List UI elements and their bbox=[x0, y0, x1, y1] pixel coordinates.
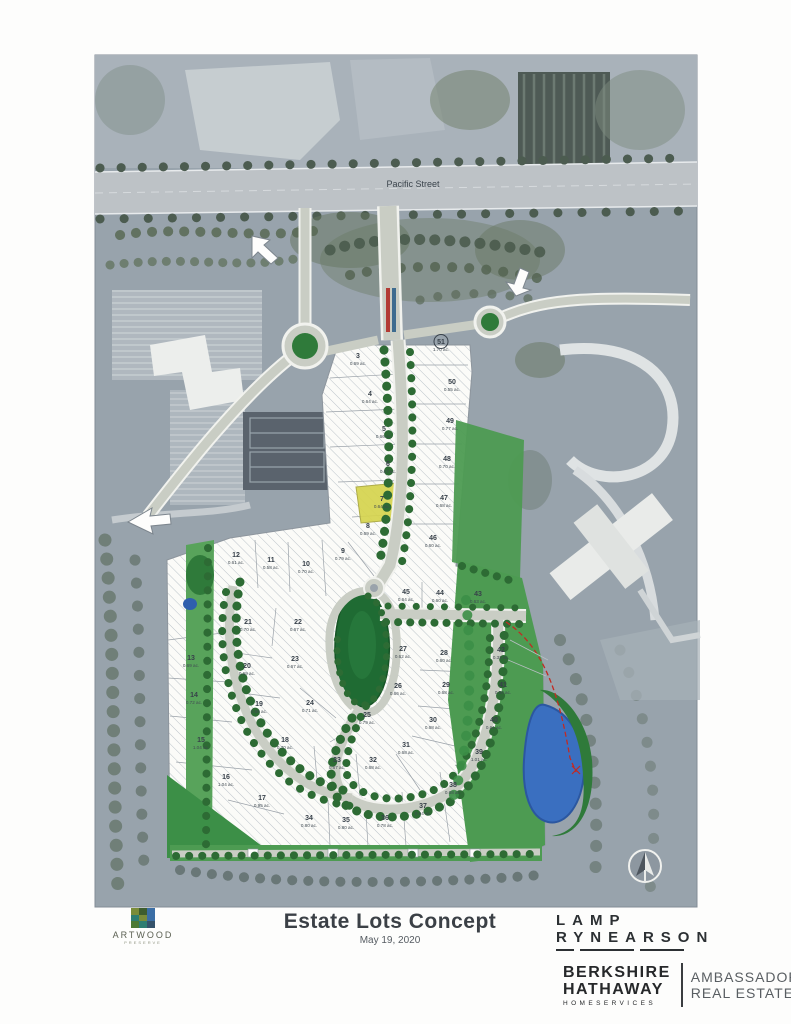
lot-acreage: 0.63 ac. bbox=[470, 599, 486, 604]
lot-acreage: 1.04 ac. bbox=[193, 745, 209, 750]
page-title: Estate Lots Concept bbox=[230, 910, 550, 934]
lot-number: 34 bbox=[305, 815, 313, 822]
lot-acreage: 0.78 ac. bbox=[377, 823, 393, 828]
lot-number: 41 bbox=[499, 682, 507, 689]
lot-number: 15 bbox=[197, 737, 205, 744]
lot-number: 27 bbox=[399, 646, 407, 653]
lot-number: 4 bbox=[368, 391, 372, 398]
lot-number: 32 bbox=[369, 757, 377, 764]
lot-number: 3 bbox=[356, 353, 360, 360]
lot-number: 47 bbox=[440, 495, 448, 502]
lot-acreage: 0.67 ac. bbox=[290, 627, 306, 632]
bh-right1: AMBASSADOR bbox=[691, 969, 791, 985]
lot-number: 20 bbox=[243, 663, 251, 670]
lot-acreage: 0.77 ac. bbox=[442, 426, 458, 431]
lot-acreage: 0.61 ac. bbox=[486, 725, 502, 730]
lot-acreage: 0.68 ac. bbox=[398, 750, 414, 755]
lot-number: 26 bbox=[394, 683, 402, 690]
lot-number: 24 bbox=[306, 700, 314, 707]
lot-number: 33 bbox=[333, 757, 341, 764]
lot-number: 48 bbox=[443, 456, 451, 463]
lot-acreage: 0.67 ac. bbox=[287, 664, 303, 669]
lot-acreage: 0.68 ac. bbox=[445, 790, 461, 795]
artwood-name: ARTWOOD bbox=[98, 930, 188, 940]
title-block: Estate Lots Concept May 19, 2020 bbox=[230, 910, 550, 946]
scanned-site-plan-page: Pacific Street bbox=[0, 0, 791, 1024]
lot-number: 22 bbox=[294, 619, 302, 626]
lot-number: 16 bbox=[222, 774, 230, 781]
lot-number: 14 bbox=[190, 692, 198, 699]
site-plan-svg: Pacific Street bbox=[0, 0, 791, 1024]
lot-number: 49 bbox=[446, 418, 454, 425]
lot-number: 29 bbox=[442, 682, 450, 689]
lot-number: 18 bbox=[281, 737, 289, 744]
bh-divider bbox=[681, 963, 683, 1007]
lot-number: 43 bbox=[474, 591, 482, 598]
lot-acreage: 0.71 ac. bbox=[302, 708, 318, 713]
lot-number: 12 bbox=[232, 552, 240, 559]
lot-acreage: 0.70 ac. bbox=[298, 569, 314, 574]
lot-number: 51 bbox=[437, 339, 445, 346]
lot-acreage: 0.80 ac. bbox=[301, 823, 317, 828]
lot-acreage: 0.68 ac. bbox=[425, 725, 441, 730]
lot-acreage: 0.94 ac. bbox=[415, 811, 431, 816]
lot-number: 7 bbox=[380, 496, 384, 503]
lot-number: 19 bbox=[255, 701, 263, 708]
lot-acreage: 0.60 ac. bbox=[425, 543, 441, 548]
lot-number: 5 bbox=[382, 426, 386, 433]
lot-number: 39 bbox=[475, 749, 483, 756]
lot-number: 11 bbox=[267, 557, 275, 564]
lot-number: 9 bbox=[341, 548, 345, 555]
lot-acreage: 0.66 ac. bbox=[390, 691, 406, 696]
bh-line2: HATHAWAY bbox=[563, 981, 671, 998]
lot-acreage: 0.58 ac. bbox=[263, 565, 279, 570]
lot-number: 36 bbox=[381, 815, 389, 822]
north-arrow-icon bbox=[629, 850, 661, 882]
lot-number: 38 bbox=[449, 782, 457, 789]
lot-acreage: 0.70 ac. bbox=[277, 745, 293, 750]
artwood-logo: ARTWOOD PRESERVE bbox=[98, 908, 188, 945]
lot-acreage: 0.69 ac. bbox=[360, 531, 376, 536]
lamp-line2: RYNEARSON bbox=[556, 929, 696, 946]
artwood-tagline: PRESERVE bbox=[98, 940, 188, 945]
lot-acreage: 0.61 ac. bbox=[228, 560, 244, 565]
lot-number: 40 bbox=[490, 717, 498, 724]
lot-acreage: 0.68 ac. bbox=[365, 765, 381, 770]
lot-acreage: 0.64 ac. bbox=[362, 399, 378, 404]
small-pond bbox=[183, 598, 197, 610]
lot-acreage: 0.69 ac. bbox=[350, 361, 366, 366]
lot-number: 8 bbox=[366, 523, 370, 530]
lot-acreage: 0.69 ac. bbox=[183, 663, 199, 668]
bh-line3: HOMESERVICES bbox=[563, 1000, 671, 1007]
lot-acreage: 0.55 ac. bbox=[444, 387, 460, 392]
lot-number: 25 bbox=[363, 712, 371, 719]
lot-number: 50 bbox=[448, 379, 456, 386]
lot-number: 28 bbox=[440, 650, 448, 657]
lot-acreage: 0.69 ac. bbox=[239, 671, 255, 676]
artwood-quilt-icon bbox=[131, 908, 155, 928]
lot-number: 13 bbox=[187, 655, 195, 662]
lot-acreage: 0.72 ac. bbox=[186, 700, 202, 705]
lot-acreage: 0.80 ac. bbox=[338, 825, 354, 830]
roundabout-east bbox=[475, 307, 505, 337]
berkshire-hathaway-logo: BERKSHIRE HATHAWAY HOMESERVICES AMBASSAD… bbox=[563, 963, 791, 1007]
lot-acreage: 0.95 ac. bbox=[254, 803, 270, 808]
lot-number: 10 bbox=[302, 561, 310, 568]
site-plan-map: Pacific Street bbox=[0, 0, 791, 1024]
lot-acreage: 0.67 ac. bbox=[329, 765, 345, 770]
lot-acreage: 1.70 ac. bbox=[433, 347, 449, 352]
lot-number: 17 bbox=[258, 795, 266, 802]
lot-number: 35 bbox=[342, 817, 350, 824]
lot-number: 37 bbox=[419, 803, 427, 810]
lot-acreage: 0.50 ac. bbox=[495, 690, 511, 695]
lot-acreage: 0.69 ac. bbox=[251, 709, 267, 714]
lot-acreage: 1.04 ac. bbox=[218, 782, 234, 787]
lot-acreage: 0.60 ac. bbox=[436, 658, 452, 663]
lot-acreage: 0.70 ac. bbox=[439, 464, 455, 469]
lot-acreage: 0.64 ac. bbox=[374, 504, 390, 509]
lot-acreage: 0.32 ac. bbox=[493, 655, 509, 660]
lot-number: 30 bbox=[429, 717, 437, 724]
lot-acreage: 0.68 ac. bbox=[438, 690, 454, 695]
lot-acreage: 0.68 ac. bbox=[436, 503, 452, 508]
bh-line1: BERKSHIRE bbox=[563, 964, 671, 981]
lot-acreage: 0.79 ac. bbox=[359, 720, 375, 725]
lot-acreage: 0.66 ac. bbox=[376, 434, 392, 439]
lot-number: 45 bbox=[402, 589, 410, 596]
lamp-underline bbox=[556, 949, 684, 951]
lot-acreage: 1.01 ac. bbox=[471, 757, 487, 762]
lamp-rynearson-logo: LAMP RYNEARSON bbox=[556, 912, 696, 951]
lot-acreage: 0.70 ac. bbox=[240, 627, 256, 632]
roundabout-west bbox=[283, 324, 327, 368]
lot-number: 46 bbox=[429, 535, 437, 542]
lot-acreage: 0.64 ac. bbox=[398, 597, 414, 602]
lot-acreage: 0.79 ac. bbox=[335, 556, 351, 561]
lot-number: 23 bbox=[291, 656, 299, 663]
lot-number: 31 bbox=[402, 742, 410, 749]
lot-acreage: 0.60 ac. bbox=[432, 598, 448, 603]
pacific-street-label: Pacific Street bbox=[386, 179, 440, 189]
lot-number: 6 bbox=[386, 461, 390, 468]
lot-acreage: 0.67 ac. bbox=[380, 469, 396, 474]
lamp-line1: LAMP bbox=[556, 912, 696, 929]
lot-number: 44 bbox=[436, 590, 444, 597]
bh-right2: REAL ESTATE bbox=[691, 985, 791, 1001]
lot-acreage: 0.62 ac. bbox=[395, 654, 411, 659]
page-date: May 19, 2020 bbox=[230, 935, 550, 946]
lot-number: 42 bbox=[497, 647, 505, 654]
lot-number: 21 bbox=[244, 619, 252, 626]
